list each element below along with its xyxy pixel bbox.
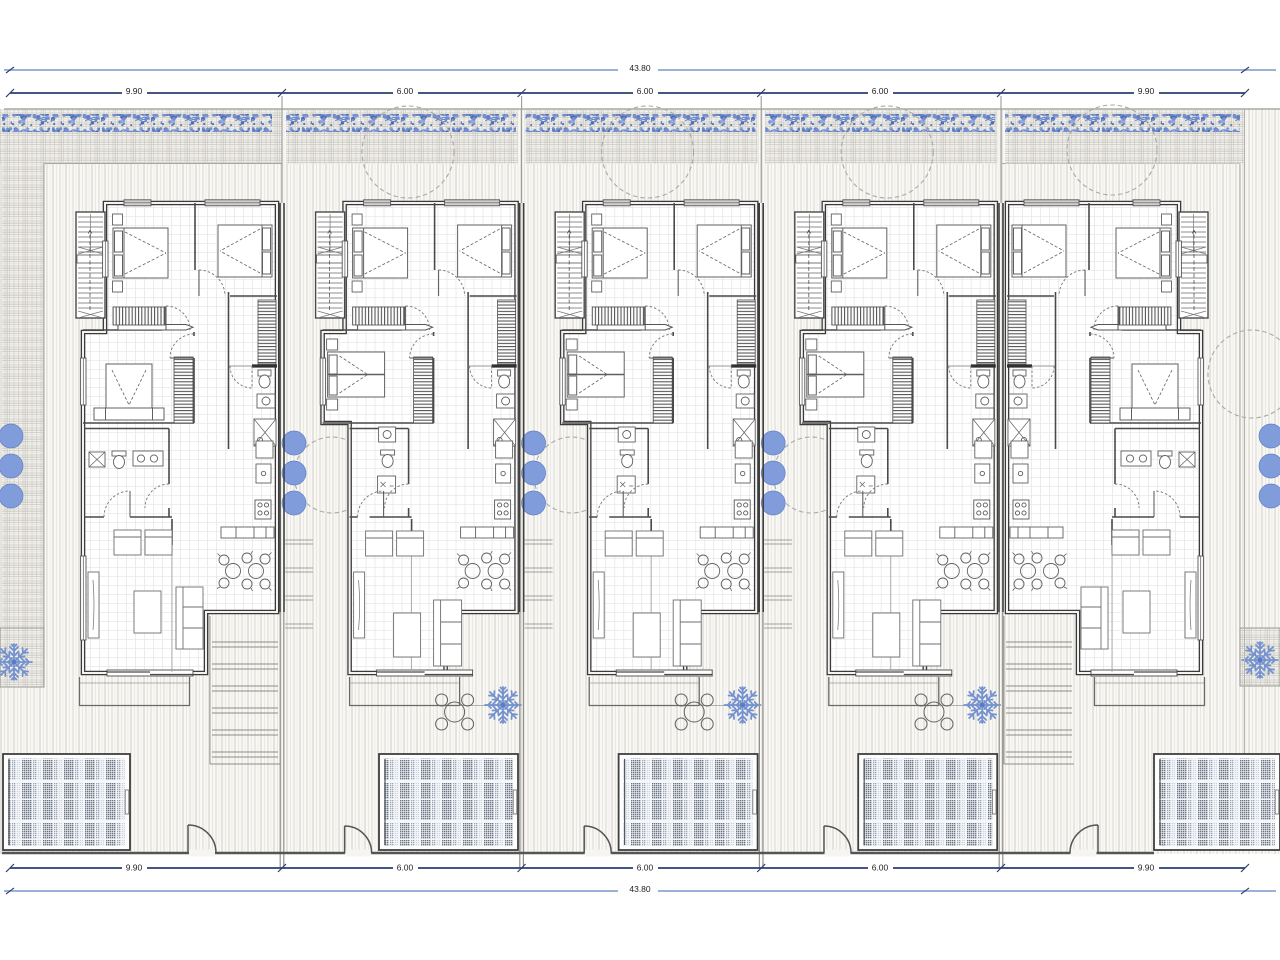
svg-text:9.90: 9.90 bbox=[1138, 863, 1155, 873]
svg-text:6.00: 6.00 bbox=[637, 86, 654, 96]
svg-text:9.90: 9.90 bbox=[1138, 86, 1155, 96]
svg-text:6.00: 6.00 bbox=[637, 863, 654, 873]
svg-text:6.00: 6.00 bbox=[397, 86, 414, 96]
svg-text:6.00: 6.00 bbox=[872, 86, 889, 96]
svg-text:6.00: 6.00 bbox=[872, 863, 889, 873]
svg-text:9.90: 9.90 bbox=[126, 863, 143, 873]
svg-text:9.90: 9.90 bbox=[126, 86, 143, 96]
svg-text:6.00: 6.00 bbox=[397, 863, 414, 873]
svg-text:43.80: 43.80 bbox=[629, 884, 651, 894]
svg-text:43.80: 43.80 bbox=[629, 63, 651, 73]
